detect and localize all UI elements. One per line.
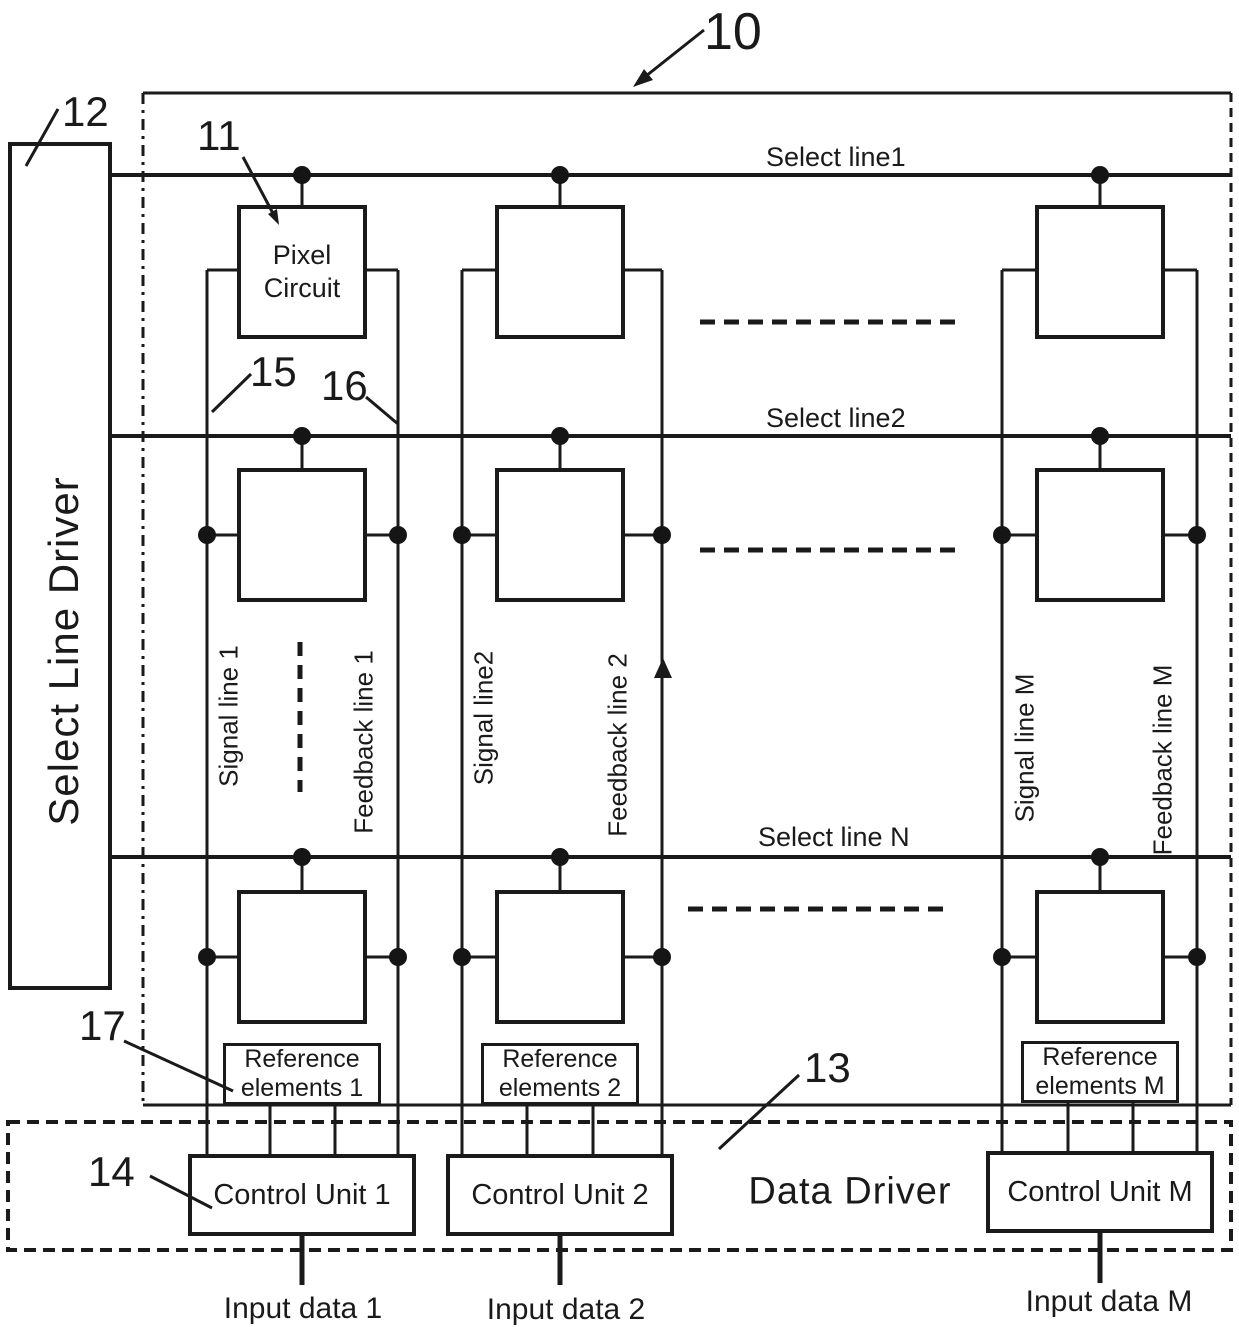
leader-17 [124,1041,233,1091]
reference-elements-box: Reference elements 2 [481,1043,639,1105]
junction-dot [653,526,671,544]
pixel-circuit-label: Pixel Circuit [241,239,363,305]
callout-leaders [26,30,799,1208]
select-line-driver-box: Select Line Driver [8,142,112,990]
control-unit-box: Control Unit 1 [188,1154,416,1236]
select-line-driver-label: Select Line Driver [40,476,88,825]
signal-line-m-label: Signal line M [1010,674,1041,823]
junction-dot [993,948,1011,966]
control-unit-box: Control Unit M [986,1151,1214,1233]
pixel-circuit-box [495,205,625,339]
signal-line-1-label: Signal line 1 [214,645,245,787]
junction-dot [1188,948,1206,966]
reference-elements-label: Reference elements M [1024,1043,1176,1102]
leader-16 [366,397,398,424]
junction-dot [198,526,216,544]
callout-pixel-circuit: 11 [197,112,241,160]
junction-dot [293,427,311,445]
junction-dot [293,848,311,866]
pixel-circuit-box [237,468,367,602]
input-data-2-label: Input data 2 [487,1293,645,1327]
control-unit-label: Control Unit 1 [213,1179,390,1212]
reference-elements-box: Reference elements M [1021,1041,1179,1103]
callout-display-panel: 10 [704,2,762,62]
junction-dot [453,526,471,544]
junction-dot [453,948,471,966]
pixel-circuit-box [495,890,625,1024]
callout-feedback-line: 16 [321,362,368,410]
feedback-direction-arrow [654,658,672,678]
junction-dot [551,427,569,445]
control-unit-label: Control Unit M [1007,1176,1192,1209]
feedback-line-2-label: Feedback line 2 [603,653,634,837]
reference-elements-label: Reference elements 1 [226,1045,378,1104]
pixel-circuit-box [1035,890,1165,1024]
junction-dot [293,166,311,184]
junction-dot [389,948,407,966]
junction-dot [1091,848,1109,866]
pixel-circuit-box [495,468,625,602]
select-line-n-label: Select line N [758,822,910,853]
leader-10 [646,30,704,76]
feedback-line-m-label: Feedback line M [1148,665,1179,856]
control-unit-box: Control Unit 2 [446,1154,674,1236]
junction-dot [551,848,569,866]
junction-dot [389,526,407,544]
reference-elements-box: Reference elements 1 [223,1043,381,1105]
control-unit-label: Control Unit 2 [471,1179,648,1212]
arrowhead-10 [633,69,653,87]
data-driver-label: Data Driver [748,1171,951,1214]
junction-dot [1091,427,1109,445]
pixel-circuit-box: Pixel Circuit [237,205,367,339]
pixel-circuit-box [1035,205,1165,339]
input-data-m-label: Input data M [1026,1285,1193,1319]
callout-reference-elements: 17 [79,1002,126,1050]
pixel-circuit-box [1035,468,1165,602]
select-line-2-label: Select line2 [766,403,906,434]
callout-select-line-driver: 12 [62,88,109,136]
reference-elements-label: Reference elements 2 [484,1045,636,1104]
leader-15 [212,374,251,412]
callout-control-unit: 14 [88,1148,135,1196]
feedback-line-1-label: Feedback line 1 [349,650,380,834]
junction-dot [1188,526,1206,544]
junction-dot [551,166,569,184]
input-data-1-label: Input data 1 [224,1292,382,1326]
pixel-circuit-box [237,890,367,1024]
leader-13 [719,1075,799,1149]
callout-signal-line: 15 [250,348,297,396]
junction-dot [198,948,216,966]
select-line-1-label: Select line1 [766,142,906,173]
junction-dot [993,526,1011,544]
junction-dot [1091,166,1109,184]
patent-figure: Select Line Driver Pixel Circuit Referen… [0,0,1239,1327]
junction-dot [653,948,671,966]
signal-line-2-label: Signal line2 [469,651,500,785]
callout-data-driver: 13 [804,1044,851,1092]
